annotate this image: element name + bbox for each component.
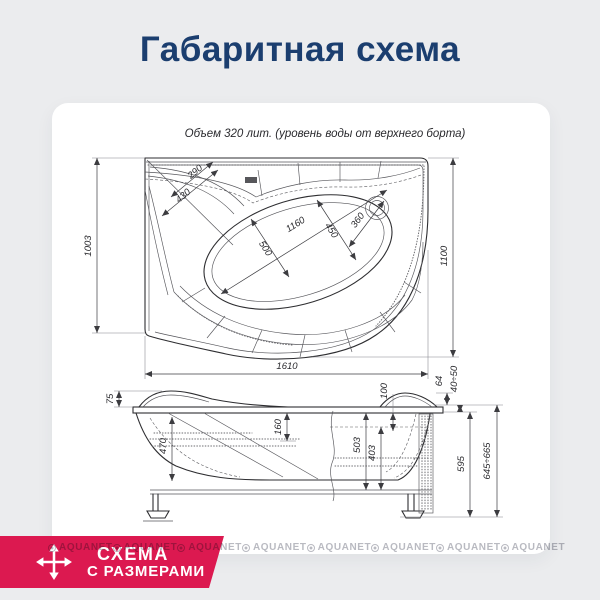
badge-line1: СХЕМА — [97, 545, 205, 564]
technical-drawing: Объем 320 лит. (уровень воды от верхнего… — [52, 103, 550, 557]
dim-360: 360 — [349, 210, 368, 230]
badge-line2: С РАЗМЕРАМИ — [87, 564, 205, 580]
dim-470: 470 — [158, 437, 169, 454]
tub-side-frame — [143, 414, 433, 521]
top-view: 1003 1100 1610 290 430 1160 — [83, 158, 459, 379]
tub-plan-basin — [190, 174, 406, 330]
dim-75: 75 — [105, 393, 116, 404]
dim-64: 64 — [434, 376, 445, 387]
badge-text: СХЕМА С РАЗМЕРАМИ — [87, 545, 205, 580]
dim-160: 160 — [273, 418, 284, 435]
dim-1100: 1100 — [439, 245, 450, 266]
dim-500: 500 — [256, 239, 274, 259]
dim-503: 503 — [352, 436, 363, 453]
dim-1160: 1160 — [284, 214, 308, 235]
dim-1610: 1610 — [276, 361, 298, 372]
dim-450: 450 — [322, 221, 340, 241]
side-view: 75 160 470 100 503 403 — [105, 365, 503, 521]
size-scheme-badge: СХЕМА С РАЗМЕРАМИ — [0, 536, 224, 588]
volume-note: Объем 320 лит. (уровень воды от верхнего… — [185, 128, 466, 140]
dim-100: 100 — [379, 382, 390, 399]
tub-plan-outline — [145, 158, 428, 359]
dim-403: 403 — [367, 444, 378, 461]
dim-645-665: 645÷665 — [482, 442, 493, 480]
dim-595: 595 — [456, 455, 467, 472]
move-arrows-icon — [34, 543, 74, 581]
tub-side-outline — [133, 391, 443, 501]
page-title: Габаритная схема — [0, 30, 600, 70]
dim-1003: 1003 — [83, 235, 94, 257]
dim-40-50: 40÷50 — [449, 365, 460, 392]
drawing-card: Объем 320 лит. (уровень воды от верхнего… — [52, 103, 550, 554]
